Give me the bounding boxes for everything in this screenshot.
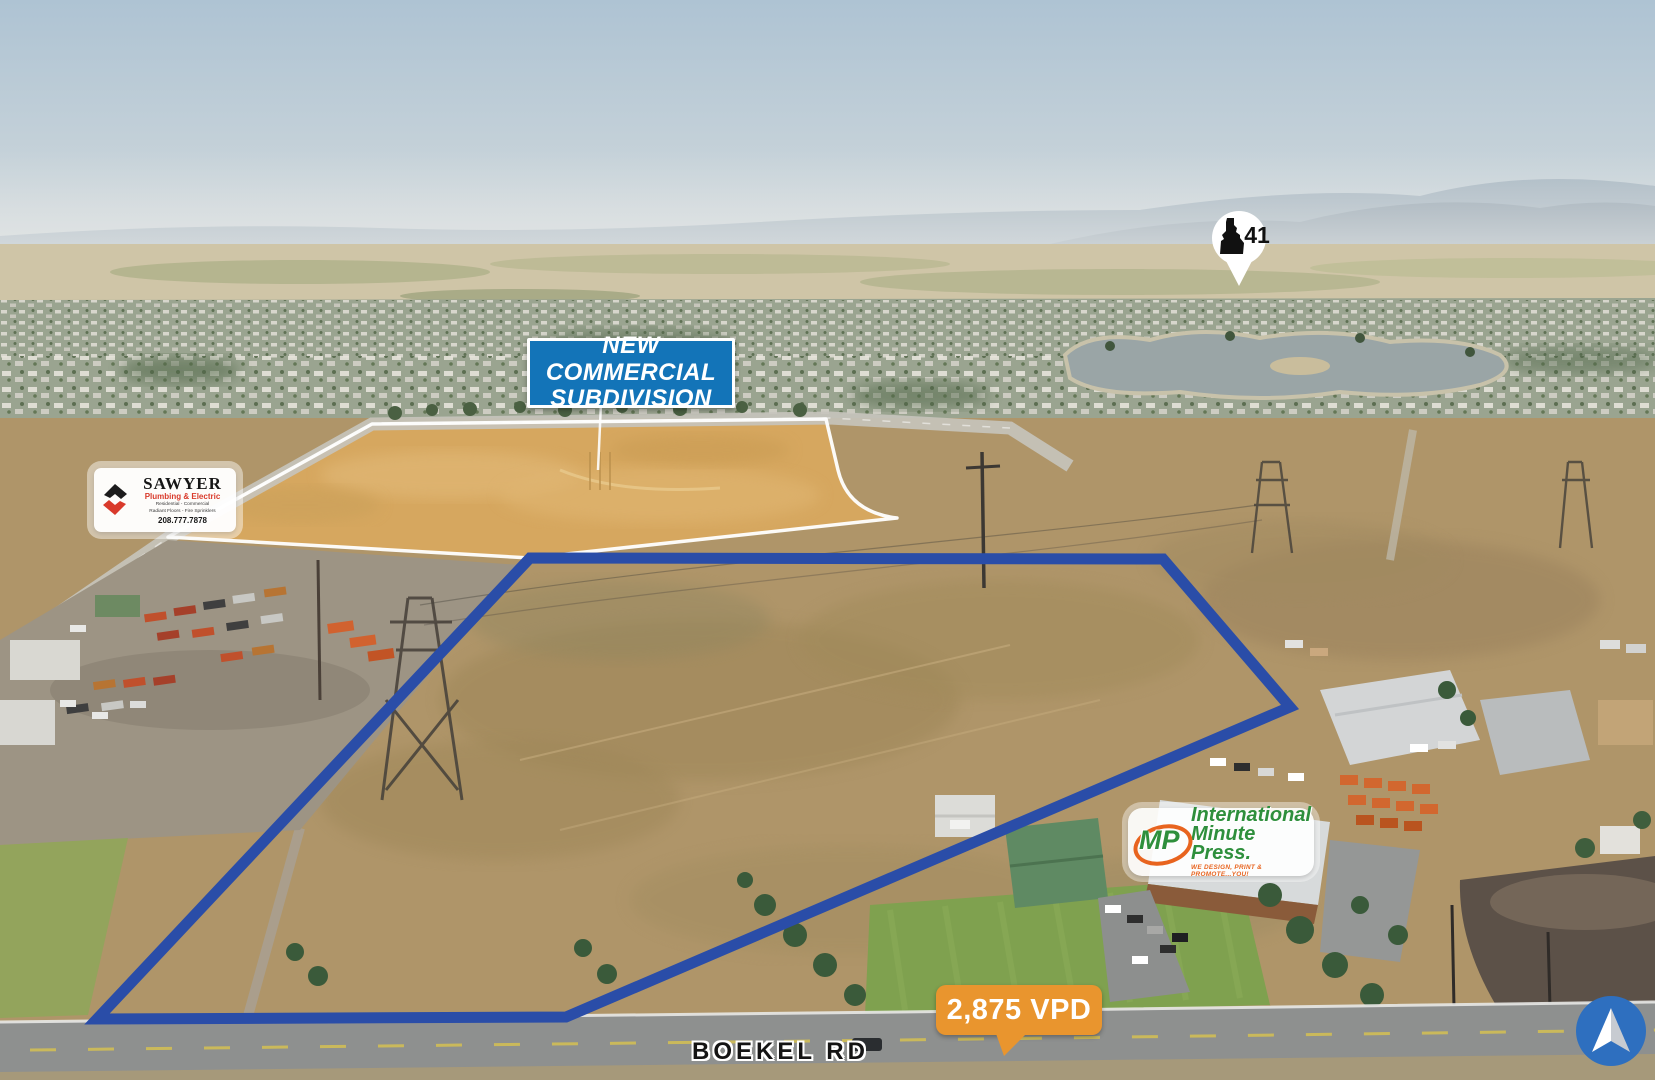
north-arrow-icon [1575,995,1647,1067]
minute-press-badge: MP International Minute Press. WE DESIGN… [1128,808,1314,876]
subdivision-sign-line2: SUBDIVISION [550,386,712,413]
sawyer-name: SAWYER [135,475,230,492]
minute-press-logo-icon: MP [1131,819,1189,865]
highway-41-marker: 41 [1208,210,1274,294]
minute-press-name-line2: Minute Press. [1191,825,1311,863]
sawyer-services-line1: Residential - Commercial [135,503,230,508]
road-name-label: BOEKEL RD [692,1038,869,1066]
sawyer-logo-icon [100,481,130,519]
sawyer-badge: SAWYER Plumbing & Electric Residential -… [94,468,236,532]
sawyer-services-line2: Radiant Floors - Fire Sprinklers [135,510,230,515]
traffic-badge-tail [992,1028,1036,1058]
minute-press-monogram: MP [1139,825,1180,856]
subdivision-sign: NEW COMMERCIAL SUBDIVISION [527,338,735,408]
subdivision-sign-line1: NEW COMMERCIAL [530,333,732,387]
aerial-site-map: NEW COMMERCIAL SUBDIVISION 41 SAWYER Plu… [0,0,1655,1080]
minute-press-tagline: WE DESIGN, PRINT & PROMOTE...YOU! [1191,865,1311,877]
sawyer-phone: 208.777.7878 [135,517,230,525]
sawyer-tagline: Plumbing & Electric [135,493,230,501]
traffic-count-label: 2,875 VPD [947,994,1092,1027]
route-number: 41 [1244,222,1270,249]
aerial-photo-background [0,0,1655,1080]
